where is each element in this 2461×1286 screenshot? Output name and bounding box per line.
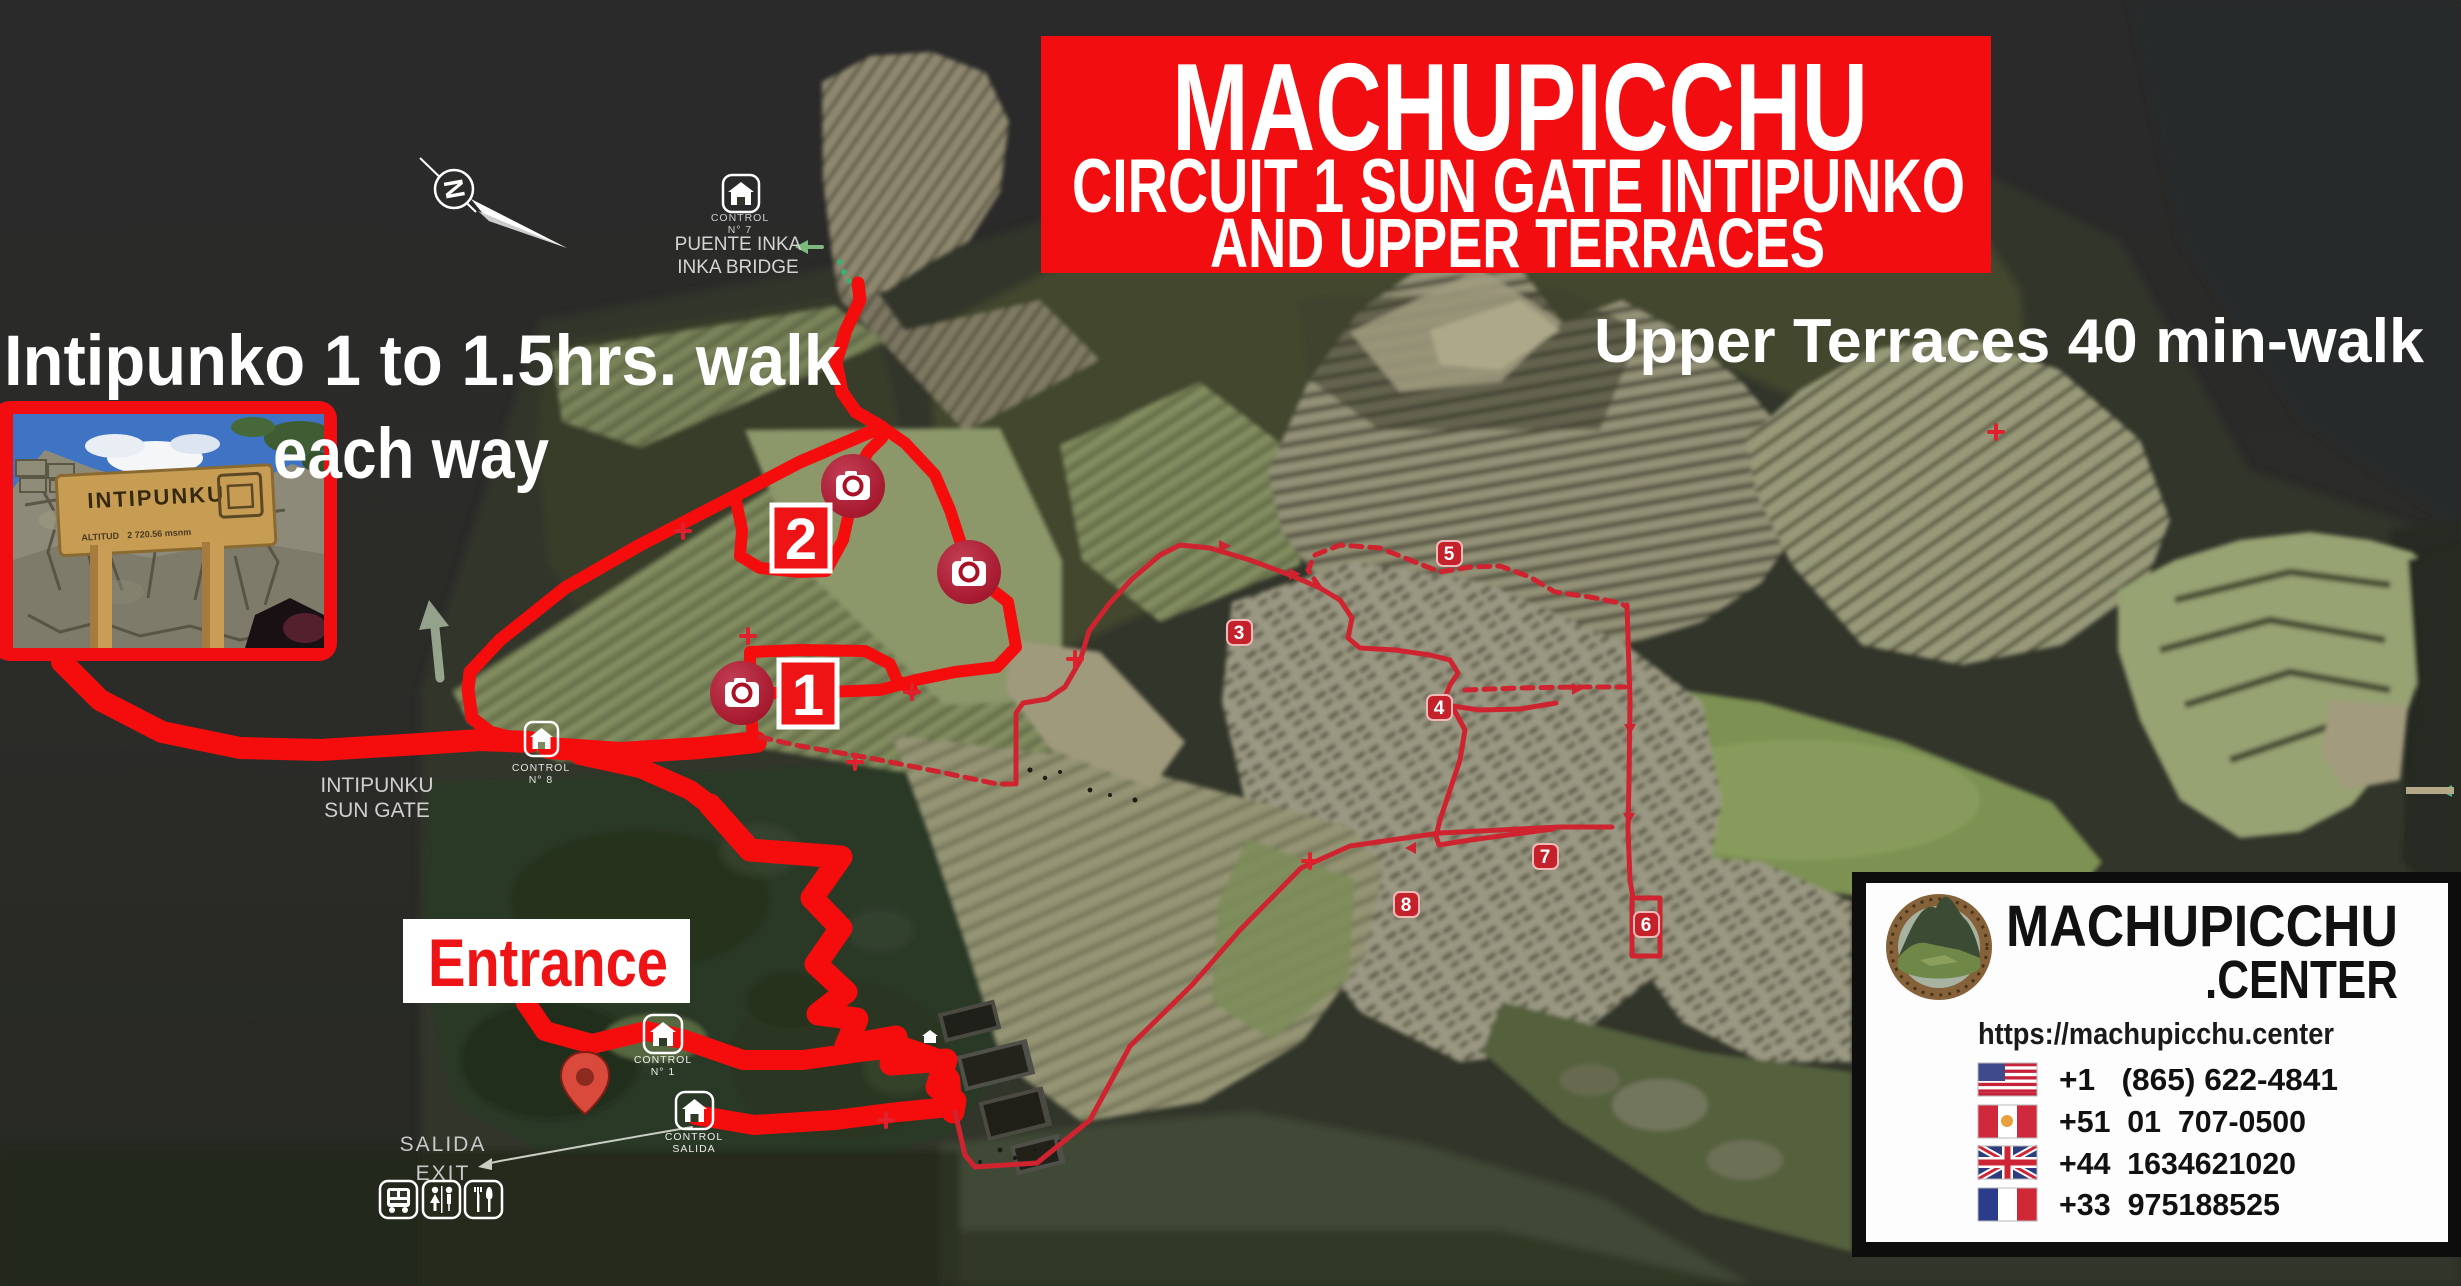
svg-text:https://machupicchu.center: https://machupicchu.center: [1978, 1016, 2334, 1051]
svg-text:+1 (865) 622-4841: +1 (865) 622-4841: [2059, 1062, 2338, 1097]
svg-text:CONTROL: CONTROL: [711, 212, 769, 224]
svg-text:+33 975188525: +33 975188525: [2059, 1187, 2280, 1222]
svg-text:N° 8: N° 8: [529, 774, 554, 786]
svg-text:AND UPPER TERRACES: AND UPPER TERRACES: [1210, 204, 1825, 282]
svg-text:INTIPUNKU: INTIPUNKU: [320, 774, 433, 797]
svg-text:Upper Terraces 40 min-walk: Upper Terraces 40 min-walk: [1594, 307, 2425, 376]
svg-text:6: 6: [1641, 915, 1652, 936]
svg-text:ALTITUD: ALTITUD: [81, 531, 120, 543]
svg-text:SUN GATE: SUN GATE: [324, 799, 430, 822]
svg-text:CONTROL: CONTROL: [512, 762, 570, 774]
svg-text:4: 4: [1434, 698, 1445, 719]
svg-text:+44 1634621020: +44 1634621020: [2059, 1146, 2296, 1181]
svg-text:PUENTE INKA: PUENTE INKA: [675, 234, 802, 255]
svg-text:INKA BRIDGE: INKA BRIDGE: [677, 257, 798, 278]
svg-text:CONTROL: CONTROL: [665, 1131, 723, 1143]
svg-text:7: 7: [1540, 847, 1551, 868]
svg-text:1: 1: [792, 663, 824, 728]
svg-text:SALIDA: SALIDA: [672, 1143, 715, 1155]
svg-text:CONTROL: CONTROL: [634, 1054, 692, 1066]
svg-text:Intipunko 1 to 1.5hrs. walk: Intipunko 1 to 1.5hrs. walk: [4, 322, 841, 401]
svg-text:each way: each way: [273, 415, 549, 494]
svg-text:8: 8: [1401, 895, 1412, 916]
svg-text:Entrance: Entrance: [428, 925, 668, 1001]
svg-text:N° 1: N° 1: [651, 1066, 676, 1078]
svg-text:3: 3: [1234, 623, 1245, 644]
svg-text:.CENTER: .CENTER: [2205, 950, 2398, 1010]
svg-text:EXIT: EXIT: [416, 1162, 471, 1185]
svg-text:5: 5: [1444, 544, 1455, 565]
svg-text:SALIDA: SALIDA: [400, 1133, 487, 1156]
svg-text:2: 2: [785, 507, 817, 572]
svg-text:+51 01 707-0500: +51 01 707-0500: [2059, 1104, 2306, 1139]
